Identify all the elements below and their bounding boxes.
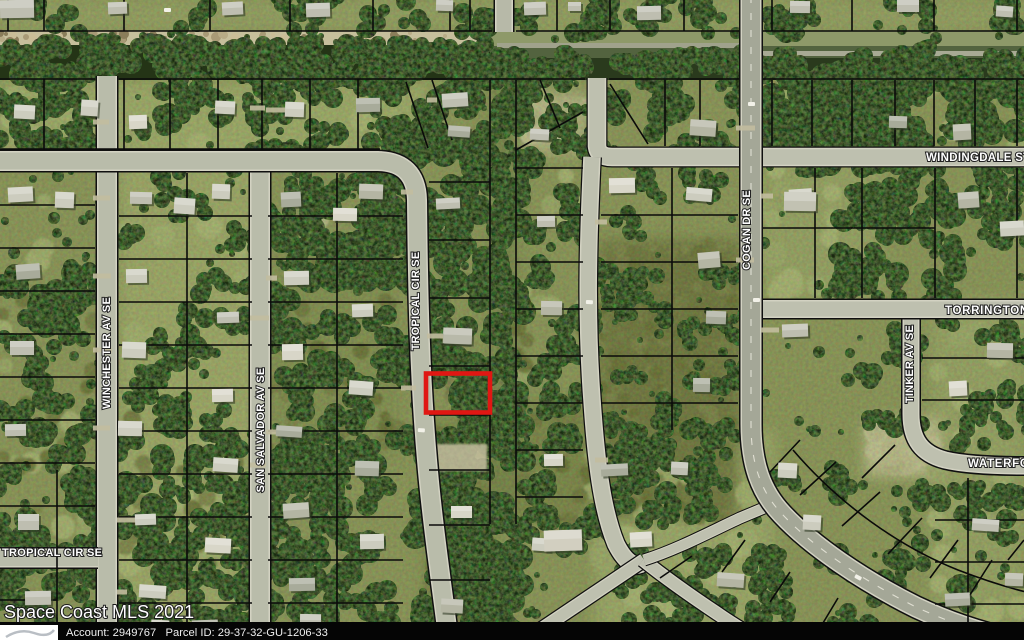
- svg-text:TROPICAL CIR SE: TROPICAL CIR SE: [410, 252, 422, 351]
- svg-text:SAN SALVADOR AV SE: SAN SALVADOR AV SE: [255, 368, 267, 493]
- svg-text:WINCHESTER AV SE: WINCHESTER AV SE: [101, 297, 113, 409]
- svg-text:COGAN DR SE: COGAN DR SE: [741, 190, 753, 270]
- svg-text:TINKER AV SE: TINKER AV SE: [904, 325, 916, 403]
